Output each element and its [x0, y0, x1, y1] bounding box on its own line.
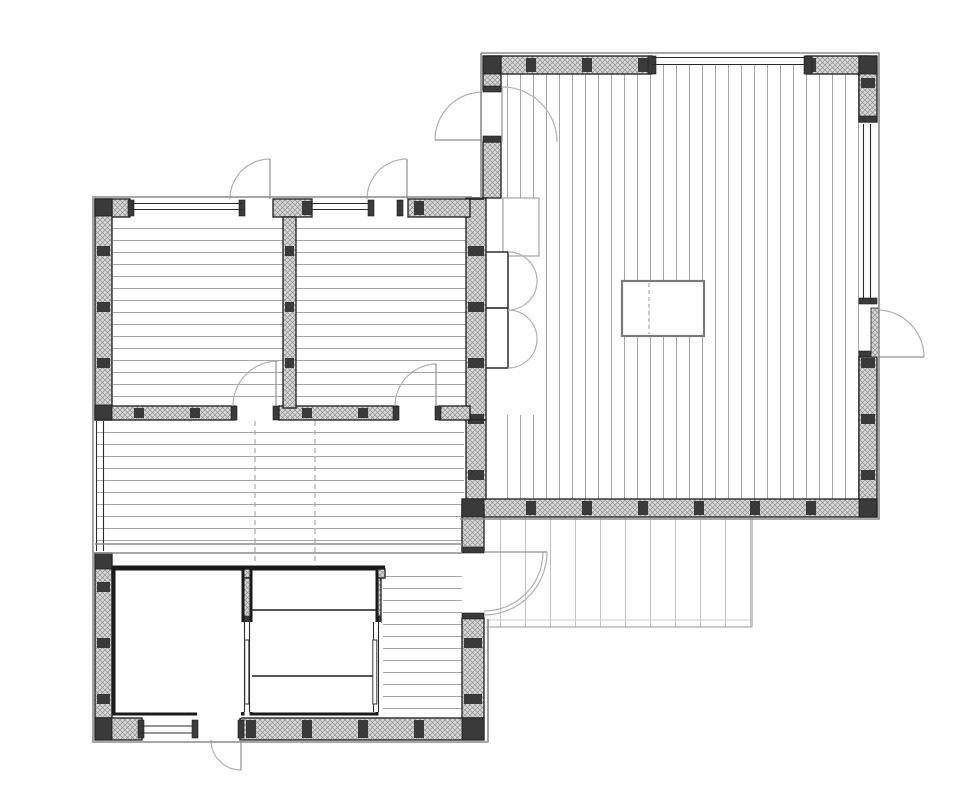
- bathroom-window: [140, 726, 192, 733]
- sauna: [251, 569, 377, 714]
- living-room-bottom-wall: [462, 499, 877, 517]
- bedroom-2-window: [312, 204, 368, 210]
- bedroom-partition-wall: [283, 217, 296, 408]
- shared-wall-living-bedroom: [466, 198, 486, 420]
- sauna-glass-door-leaf-right: [373, 640, 377, 704]
- floor-plan-drawing: [0, 0, 960, 800]
- bedroom-1-window: [130, 204, 243, 210]
- living-room-left-wall: [483, 56, 501, 198]
- bedroom-1-floor-boards: [113, 217, 283, 406]
- entry-left-wall: [95, 553, 112, 718]
- living-room-floor-window-strip: [652, 64, 806, 74]
- right-door-panel: [871, 308, 879, 357]
- living-room-top-window: [652, 58, 806, 65]
- kitchen-island: [622, 281, 704, 336]
- entry-right-wall: [462, 505, 484, 718]
- bedroom-1-exterior-door-swing: [230, 159, 270, 199]
- hallway-right-wall: [466, 420, 486, 499]
- bathroom-door-gap: [197, 710, 241, 718]
- entry-corridor-floor-boards: [383, 566, 462, 716]
- living-room-right-window: [864, 124, 871, 300]
- bedroom-top-wall: [95, 199, 470, 217]
- entry-bottom-wall: [95, 718, 484, 740]
- entry-exterior-door-swing: [211, 740, 241, 770]
- living-room-right-wall: [859, 56, 877, 517]
- deck: [486, 518, 752, 627]
- counter-unit: [503, 198, 539, 256]
- deck-boards: [486, 518, 752, 627]
- hallway-floor-boards: [97, 421, 464, 551]
- wardrobe: [484, 252, 508, 368]
- sauna-glass-door-leaf-left: [245, 640, 249, 704]
- bathroom: [114, 569, 243, 714]
- bedroom-2-exterior-door-swing: [367, 159, 407, 199]
- bedroom-left-wall: [95, 199, 112, 420]
- floor-plan-sheet: [0, 0, 960, 800]
- bedroom-2-floor-boards: [296, 217, 466, 406]
